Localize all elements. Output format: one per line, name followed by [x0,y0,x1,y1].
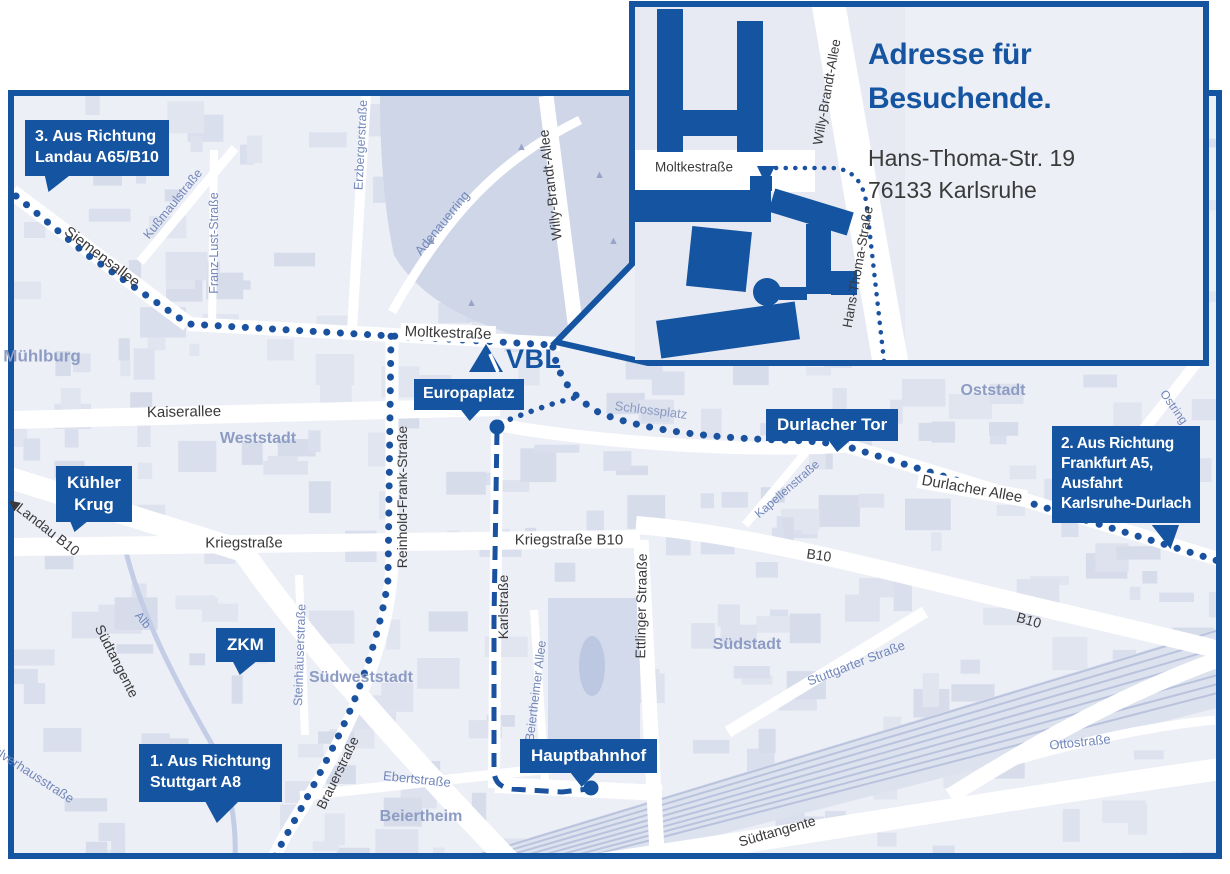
karlsruhe-directions-map: ▲ ▲ ▲ ▲ ▲ ▲ [0,0,1230,874]
callout-kuehler-krug-line1: Kühler [67,472,121,494]
inset-title-line2: Besuchende. [868,77,1051,121]
svg-text:▲: ▲ [608,235,619,247]
street-label-kriegstrasse: Kriegstraße [205,536,283,551]
district-label-suedweststadt: Südweststadt [309,670,413,686]
inset-street-label-moltkestrasse: Moltkestraße [655,160,733,174]
callout-kuehler-krug: Kühler Krug [56,466,132,522]
callout-europaplatz: Europaplatz [414,379,524,410]
inset-address-line2: 76133 Karlsruhe [868,174,1075,206]
callout-hauptbahnhof: Hauptbahnhof [520,739,657,773]
street-label-kaiserallee: Kaiserallee [147,404,221,420]
street-label-kriegstrasse-b10: Kriegstraße B10 [515,533,623,548]
callout-route-3-line2: Landau A65/B10 [35,148,159,169]
callout-route-2-frankfurt: 2. Aus Richtung Frankfurt A5, Ausfahrt K… [1052,426,1200,523]
district-label-weststadt: Weststadt [220,431,296,447]
inset-address: Hans-Thoma-Str. 19 76133 Karlsruhe [868,142,1075,206]
vbl-logo-text: VBL [506,346,562,373]
street-label-ettlinger-strasse: Ettlinger Straaße [633,553,649,658]
callout-durlacher-tor-label: Durlacher Tor [777,415,887,434]
callout-route-2-line2: Frankfurt A5, [1061,454,1191,474]
district-label-beiertheim: Beiertheim [380,809,463,825]
callout-route-1-line2: Stuttgart A8 [150,773,271,794]
callout-durlacher-tor: Durlacher Tor [766,409,898,441]
svg-text:▲: ▲ [516,141,527,153]
district-label-suedstadt: Südstadt [713,637,781,653]
callout-route-2-line1: 2. Aus Richtung [1061,434,1191,454]
inset-address-line1: Hans-Thoma-Str. 19 [868,142,1075,174]
inset-title: Adresse für Besuchende. [868,33,1051,120]
callout-europaplatz-label: Europaplatz [423,385,515,402]
callout-zkm: ZKM [216,628,275,662]
callout-route-3-line1: 3. Aus Richtung [35,127,159,148]
callout-route-2-line4: Karlsruhe-Durlach [1061,494,1191,514]
pond [579,636,605,696]
street-label-karlstrasse: Karlstraße [496,575,510,640]
svg-text:▲: ▲ [466,297,477,309]
inset-title-line1: Adresse für [868,33,1051,77]
callout-route-1-line1: 1. Aus Richtung [150,752,271,773]
svg-text:▲: ▲ [594,169,605,181]
district-label-muehlburg: Mühlburg [3,348,80,365]
callout-route-2-line3: Ausfahrt [1061,474,1191,494]
vbl-logo-triangle-icon [468,341,504,373]
callout-kuehler-krug-line2: Krug [67,494,121,516]
callout-route-1-stuttgart: 1. Aus Richtung Stuttgart A8 [139,744,282,802]
street-label-reinhold-frank-strasse: Reinhold-Frank-Straße [395,426,409,568]
callout-zkm-label: ZKM [227,635,264,654]
europaplatz-marker-dot [490,420,505,435]
callout-route-3-landau: 3. Aus Richtung Landau A65/B10 [25,120,169,176]
vbl-logo: VBL [468,341,562,373]
street-label-b10-mid: B10 [806,546,833,563]
district-label-oststadt: Oststadt [961,383,1026,399]
street-label-franz-lust-strasse: Franz-Lust-Straße [208,192,221,293]
callout-hauptbahnhof-label: Hauptbahnhof [531,746,646,765]
